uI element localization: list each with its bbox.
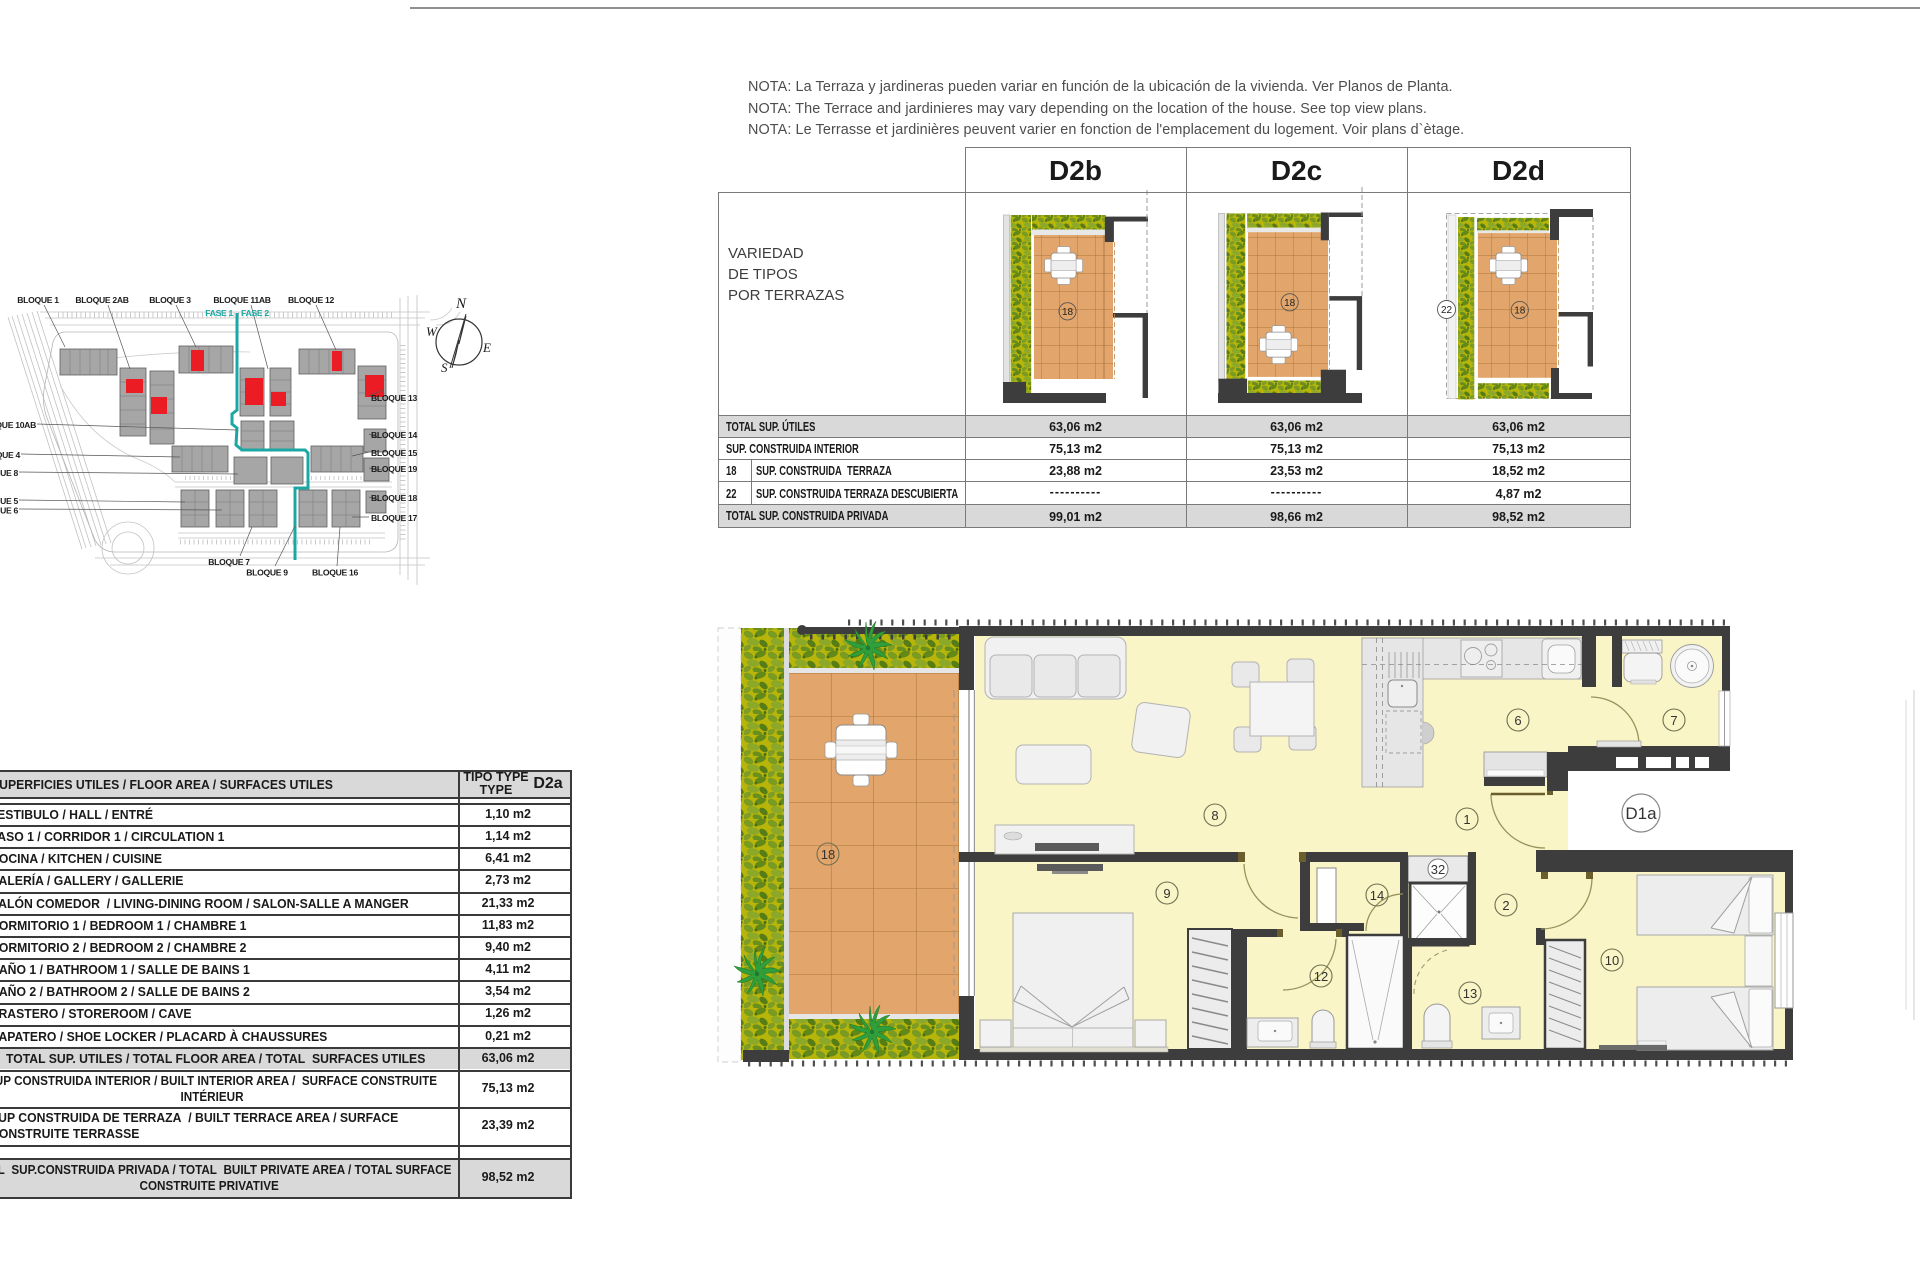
svg-text:BLOQUE 4: BLOQUE 4 <box>0 450 21 460</box>
svg-text:BLOQUE 2AB: BLOQUE 2AB <box>75 295 128 305</box>
svg-text:BLOQUE 19: BLOQUE 19 <box>371 464 418 474</box>
svg-text:2: 2 <box>1502 898 1509 913</box>
svg-text:BLOQUE 1: BLOQUE 1 <box>17 295 59 305</box>
svg-text:BLOQUE 3: BLOQUE 3 <box>149 295 191 305</box>
svg-text:12: 12 <box>1314 969 1328 984</box>
svg-text:18: 18 <box>1284 298 1296 309</box>
svg-text:13: 13 <box>1463 986 1477 1001</box>
svg-text:W: W <box>426 324 438 339</box>
svg-text:BLOQUE 13: BLOQUE 13 <box>371 393 418 403</box>
svg-text:14: 14 <box>1370 888 1384 903</box>
svg-text:22: 22 <box>1441 305 1453 316</box>
svg-text:BLOQUE 8: BLOQUE 8 <box>0 468 19 478</box>
svg-text:BLOQUE 10AB: BLOQUE 10AB <box>0 420 36 430</box>
svg-text:FASE 2: FASE 2 <box>241 308 269 318</box>
svg-text:18: 18 <box>1514 306 1526 317</box>
svg-text:BLOQUE 18: BLOQUE 18 <box>371 493 418 503</box>
svg-text:BLOQUE 11AB: BLOQUE 11AB <box>213 295 270 305</box>
svg-text:18: 18 <box>1062 307 1074 318</box>
svg-text:S: S <box>441 360 448 375</box>
svg-text:18: 18 <box>821 847 835 862</box>
svg-text:N: N <box>455 296 467 312</box>
svg-text:6: 6 <box>1514 713 1521 728</box>
svg-text:32: 32 <box>1431 862 1445 877</box>
svg-text:BLOQUE 7: BLOQUE 7 <box>208 557 250 567</box>
svg-text:FASE 1: FASE 1 <box>205 308 233 318</box>
svg-text:BLOQUE 14: BLOQUE 14 <box>371 430 418 440</box>
svg-text:BLOQUE 6: BLOQUE 6 <box>0 506 19 516</box>
svg-text:BLOQUE 5: BLOQUE 5 <box>0 496 19 506</box>
svg-text:BLOQUE 16: BLOQUE 16 <box>312 568 359 578</box>
svg-text:BLOQUE 12: BLOQUE 12 <box>288 295 335 305</box>
svg-text:BLOQUE 15: BLOQUE 15 <box>371 448 418 458</box>
svg-text:8: 8 <box>1211 808 1218 823</box>
svg-text:E: E <box>482 340 491 355</box>
svg-text:9: 9 <box>1163 886 1170 901</box>
svg-text:7: 7 <box>1670 713 1677 728</box>
svg-text:10: 10 <box>1605 953 1619 968</box>
svg-text:D1a: D1a <box>1625 804 1657 823</box>
svg-text:BLOQUE 9: BLOQUE 9 <box>246 568 288 578</box>
svg-text:BLOQUE 17: BLOQUE 17 <box>371 513 418 523</box>
svg-text:1: 1 <box>1463 812 1470 827</box>
